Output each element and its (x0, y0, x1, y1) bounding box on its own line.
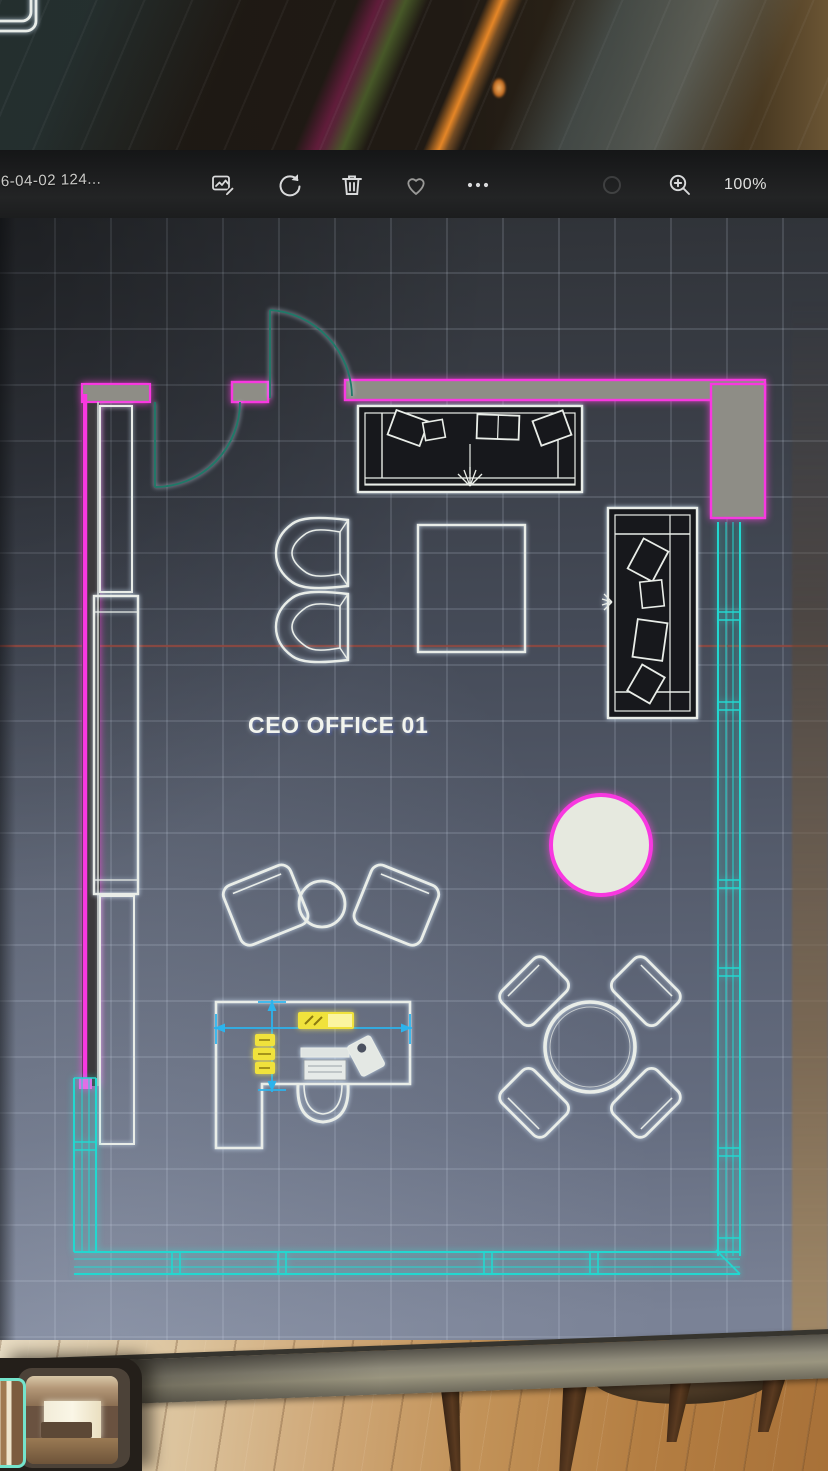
photographed-screen: 26-04-02 124... (0, 0, 828, 1471)
favorite-button[interactable] (402, 171, 430, 199)
edit-image-icon (210, 171, 238, 199)
trash-icon (338, 171, 366, 199)
thumbnail-office-photo[interactable] (26, 1376, 118, 1464)
zoom-level-label[interactable]: 100% (724, 176, 767, 194)
ceiling-photo-background (0, 0, 828, 152)
rotate-icon (276, 171, 304, 199)
heart-icon (402, 171, 430, 199)
screen-edge-reflection (792, 300, 828, 1344)
thumb-floor (26, 1438, 118, 1464)
rotate-button[interactable] (276, 171, 304, 199)
ceiling-light-dot (492, 78, 506, 98)
edit-image-button[interactable] (210, 171, 238, 199)
thumbnail-selected[interactable] (0, 1378, 26, 1468)
zoom-in-icon (666, 171, 694, 199)
filmstrip (0, 1358, 142, 1471)
zoom-in-button[interactable] (666, 171, 694, 199)
zoom-out-button[interactable] (598, 171, 626, 199)
delete-button[interactable] (338, 171, 366, 199)
screen-edge-shadow (0, 218, 16, 1344)
viewer-toolbar: 26-04-02 124... (0, 150, 828, 218)
room-label: CEO OFFICE 01 (248, 712, 428, 739)
zoom-out-dim-icon (598, 171, 626, 199)
more-options-button[interactable] (464, 171, 492, 199)
thumb-desk (41, 1422, 93, 1438)
ellipsis-icon (464, 171, 492, 199)
filename-label: 26-04-02 124... (0, 171, 101, 191)
cad-canvas[interactable] (0, 218, 828, 1344)
